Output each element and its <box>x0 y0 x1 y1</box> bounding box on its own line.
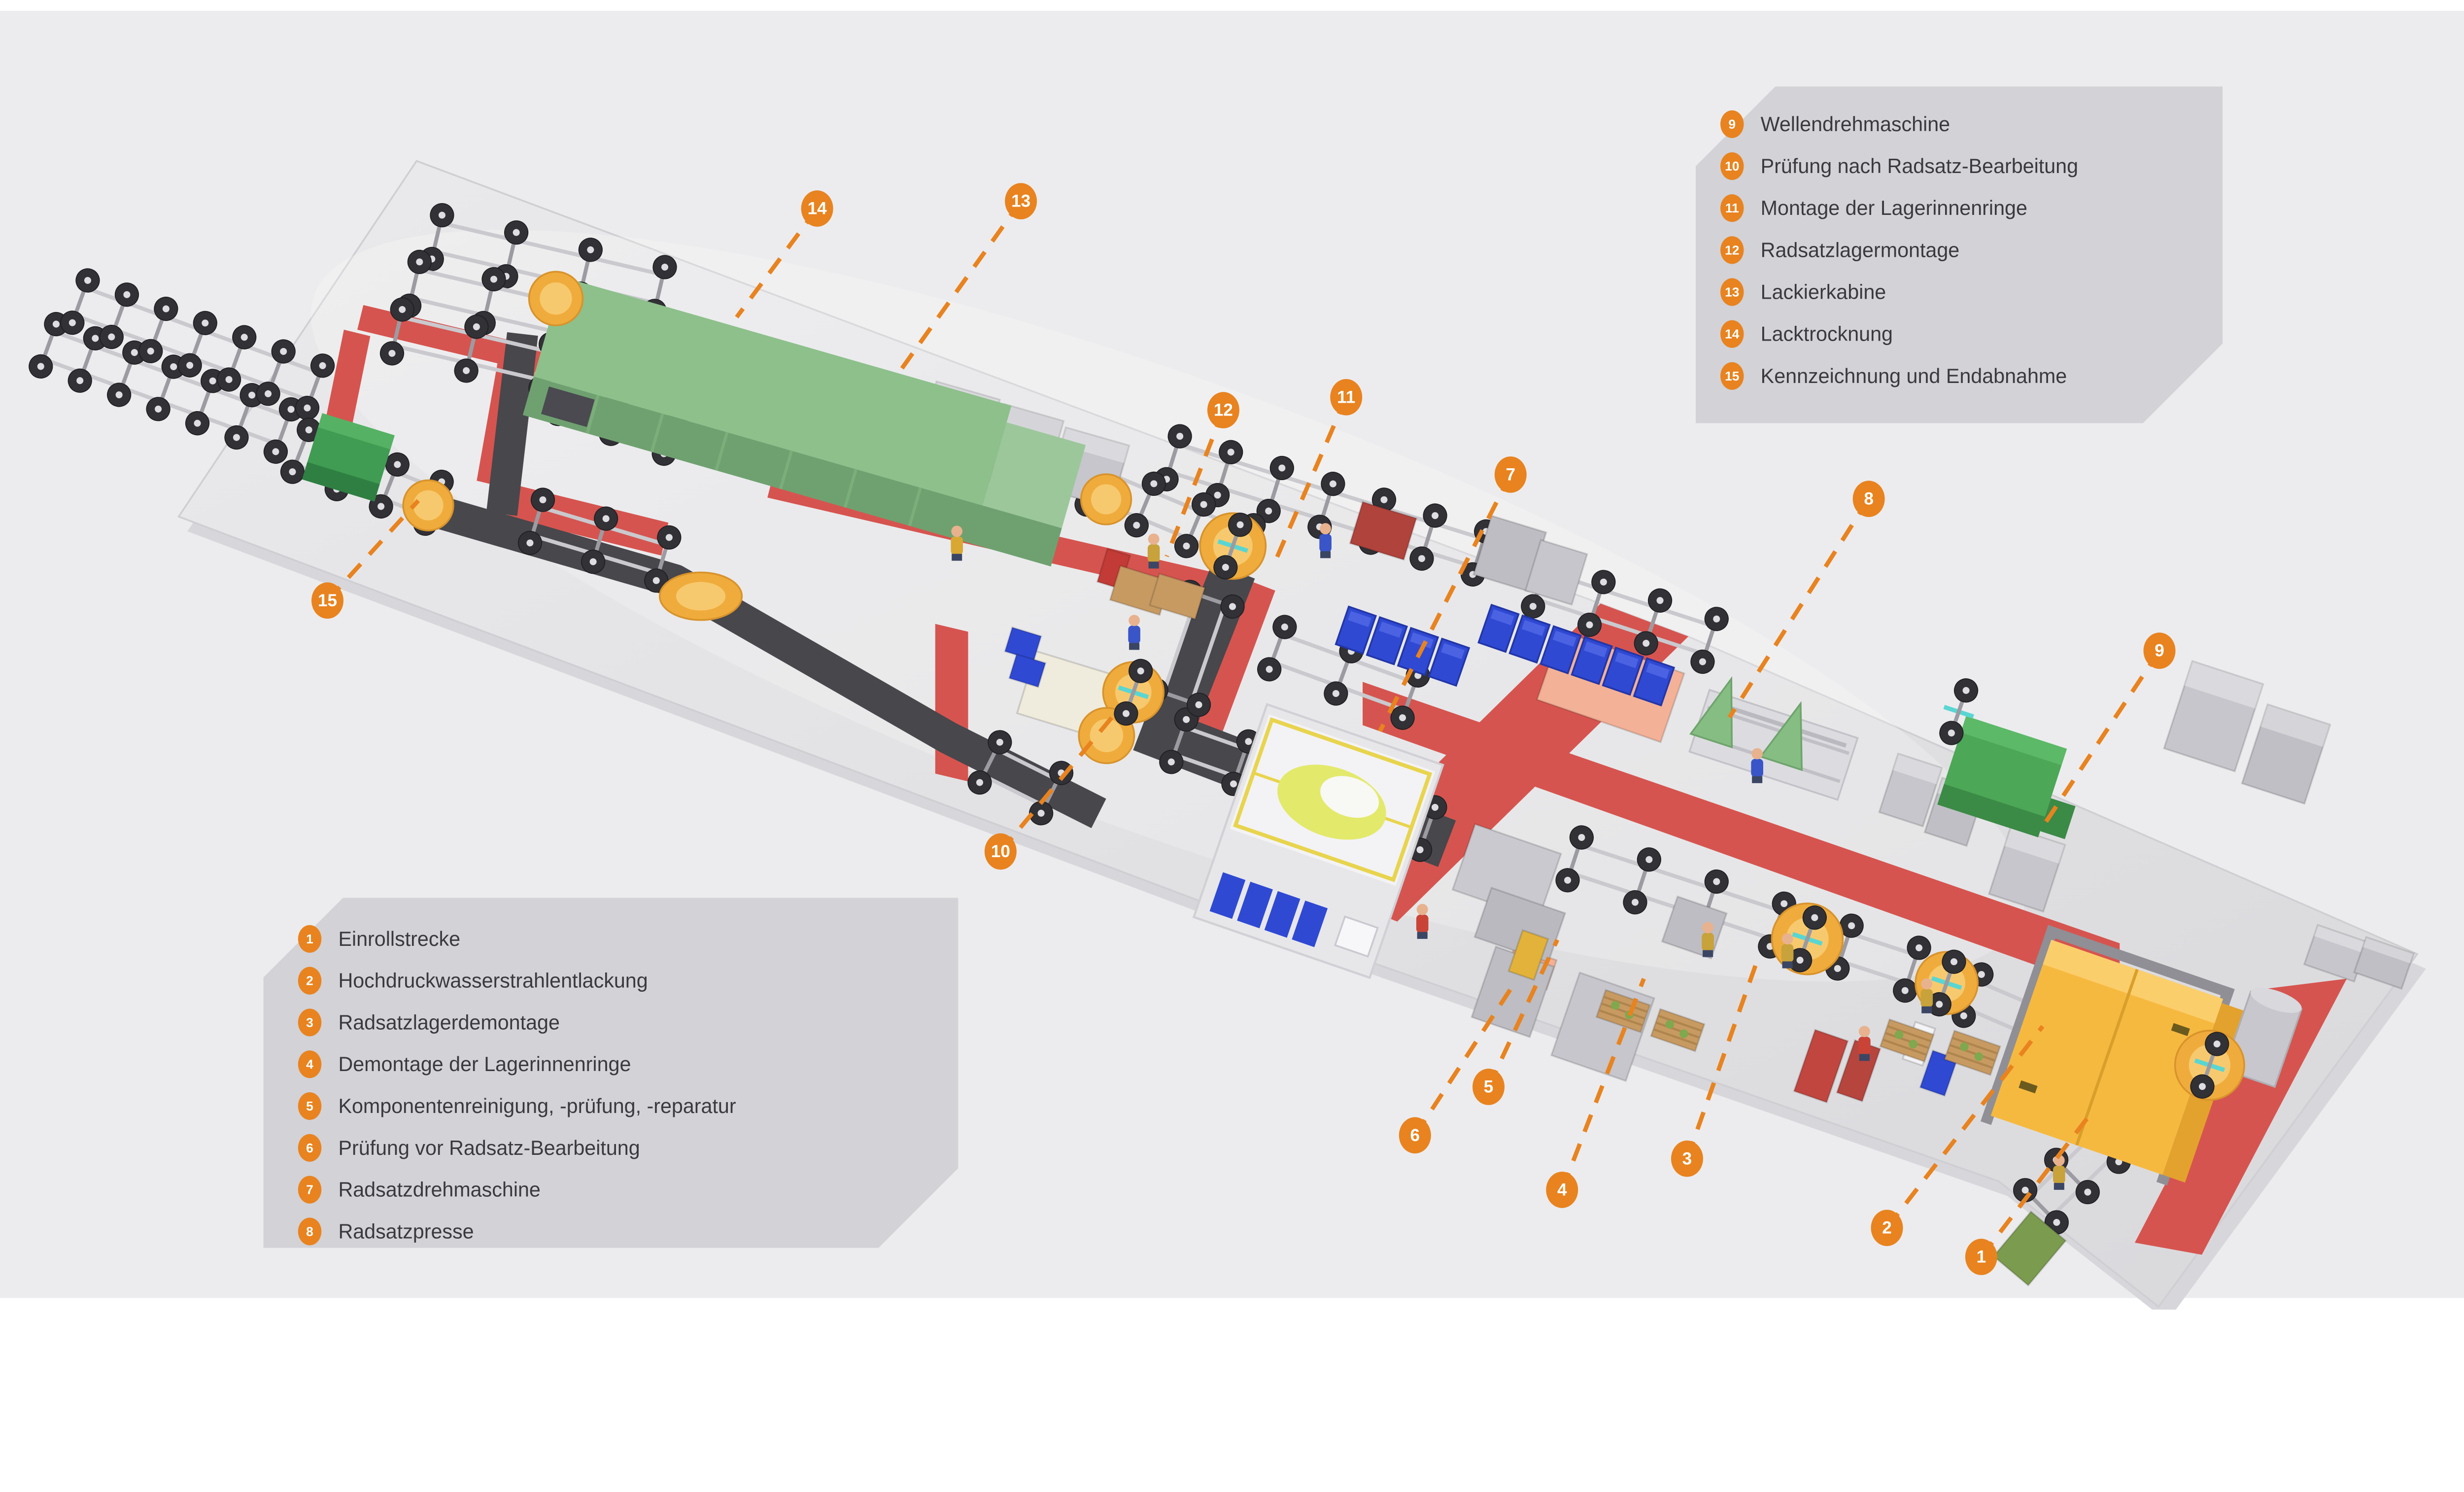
legend-label: Radsatzlagerdemontage <box>338 1011 559 1034</box>
top-white-strip <box>0 0 2464 11</box>
map-marker-number: 8 <box>1864 489 1874 509</box>
legend-item-11: 11Montage der Lagerinnenringe <box>1720 194 2027 222</box>
legend-number: 5 <box>306 1099 313 1113</box>
conveyor-belt <box>502 334 522 514</box>
legend-label: Wellendrehmaschine <box>1761 113 1950 136</box>
map-marker-number: 2 <box>1882 1218 1892 1238</box>
worker-figure <box>1319 523 1332 558</box>
turntable <box>660 572 742 620</box>
legend-label: Einrollstrecke <box>338 928 460 950</box>
legend-number: 9 <box>1728 117 1736 132</box>
worker-figure <box>1702 922 1714 957</box>
worker-figure <box>1128 615 1140 650</box>
turntable <box>529 272 583 325</box>
factory-layout-infographic: 1234567891011121314159Wellendrehmaschine… <box>0 0 2464 1310</box>
map-marker-number: 1 <box>1977 1248 1986 1267</box>
legend-number: 7 <box>306 1182 313 1197</box>
legend-label: Radsatzdrehmaschine <box>338 1179 540 1201</box>
legend-number: 11 <box>1725 201 1739 215</box>
worker-figure <box>1148 533 1160 568</box>
map-marker-5[interactable]: 5 <box>1472 1069 1505 1105</box>
map-marker-6[interactable]: 6 <box>1399 1117 1431 1154</box>
map-marker-number: 3 <box>1682 1149 1692 1168</box>
legend-label: Demontage der Lagerinnenringe <box>338 1053 631 1076</box>
legend-item-10: 10Prüfung nach Radsatz-Bearbeitung <box>1720 152 2078 180</box>
legend-number: 6 <box>306 1141 313 1155</box>
map-marker-11[interactable]: 11 <box>1330 379 1362 416</box>
scene-canvas: 1234567891011121314159Wellendrehmaschine… <box>0 0 2464 1310</box>
legend-label: Komponentenreinigung, -prüfung, -reparat… <box>338 1095 736 1117</box>
map-marker-number: 9 <box>2155 641 2164 660</box>
map-marker-12[interactable]: 12 <box>1207 392 1239 428</box>
legend-item-2: 2Hochdruckwasserstrahlentlackung <box>298 967 648 995</box>
worker-figure <box>1920 978 1933 1013</box>
turntable <box>1081 474 1131 524</box>
map-marker-9[interactable]: 9 <box>2144 632 2176 669</box>
legend-number: 2 <box>306 973 313 988</box>
legend-label: Montage der Lagerinnenringe <box>1761 197 2027 219</box>
legend-label: Radsatzlagermontage <box>1761 239 1960 261</box>
legend-number: 4 <box>306 1057 313 1072</box>
worker-figure <box>1751 748 1763 783</box>
map-marker-number: 14 <box>808 199 827 218</box>
legend-number: 8 <box>306 1224 313 1239</box>
map-marker-13[interactable]: 13 <box>1005 183 1037 219</box>
legend-label: Prüfung vor Radsatz-Bearbeitung <box>338 1137 640 1159</box>
legend-item-4: 4Demontage der Lagerinnenringe <box>298 1050 631 1078</box>
legend-number: 14 <box>1725 327 1740 342</box>
map-marker-number: 10 <box>991 842 1010 861</box>
map-marker-number: 5 <box>1484 1077 1494 1097</box>
map-marker-7[interactable]: 7 <box>1495 456 1527 493</box>
worker-figure <box>1858 1026 1871 1061</box>
legend-label: Radsatzpresse <box>338 1220 474 1243</box>
legend-label: Kennzeichnung und Endabnahme <box>1761 365 2067 387</box>
legend-number: 15 <box>1725 369 1739 383</box>
turntable <box>403 480 453 530</box>
map-marker-number: 11 <box>1337 387 1355 407</box>
legend-label: Lackierkabine <box>1761 281 1886 304</box>
map-marker-1[interactable]: 1 <box>1965 1239 1997 1275</box>
legend-panel-left: 1Einrollstrecke2Hochdruckwasserstrahlent… <box>264 898 958 1248</box>
legend-number: 1 <box>306 932 313 946</box>
worker-figure <box>1416 904 1429 939</box>
legend-number: 12 <box>1725 243 1739 257</box>
map-marker-number: 6 <box>1410 1126 1420 1145</box>
map-marker-number: 13 <box>1011 192 1030 211</box>
map-marker-15[interactable]: 15 <box>311 583 343 619</box>
legend-label: Hochdruckwasserstrahlentlackung <box>338 970 648 992</box>
legend-number: 3 <box>306 1015 313 1030</box>
map-marker-2[interactable]: 2 <box>1871 1210 1903 1246</box>
map-marker-4[interactable]: 4 <box>1546 1172 1578 1208</box>
legend-label: Lacktrocknung <box>1761 323 1893 346</box>
legend-label: Prüfung nach Radsatz-Bearbeitung <box>1761 155 2078 177</box>
map-marker-number: 15 <box>318 591 337 610</box>
map-marker-10[interactable]: 10 <box>985 833 1017 870</box>
map-marker-8[interactable]: 8 <box>1853 481 1885 517</box>
legend-number: 10 <box>1725 159 1739 173</box>
map-marker-number: 12 <box>1214 401 1233 420</box>
worker-figure <box>2053 1155 2065 1190</box>
map-marker-14[interactable]: 14 <box>801 190 833 227</box>
map-marker-number: 7 <box>1506 465 1516 484</box>
legend-panel-right: 9Wellendrehmaschine10Prüfung nach Radsat… <box>1696 87 2223 423</box>
worker-figure <box>951 526 963 561</box>
map-marker-3[interactable]: 3 <box>1671 1141 1703 1177</box>
legend-item-6: 6Prüfung vor Radsatz-Bearbeitung <box>298 1134 640 1162</box>
legend-number: 13 <box>1725 285 1739 300</box>
legend-item-5: 5Komponentenreinigung, -prüfung, -repara… <box>298 1092 736 1120</box>
legend-item-15: 15Kennzeichnung und Endabnahme <box>1720 362 2067 390</box>
worker-figure <box>1781 933 1794 968</box>
bottom-white-strip <box>0 1298 2464 1310</box>
map-marker-number: 4 <box>1557 1180 1567 1199</box>
